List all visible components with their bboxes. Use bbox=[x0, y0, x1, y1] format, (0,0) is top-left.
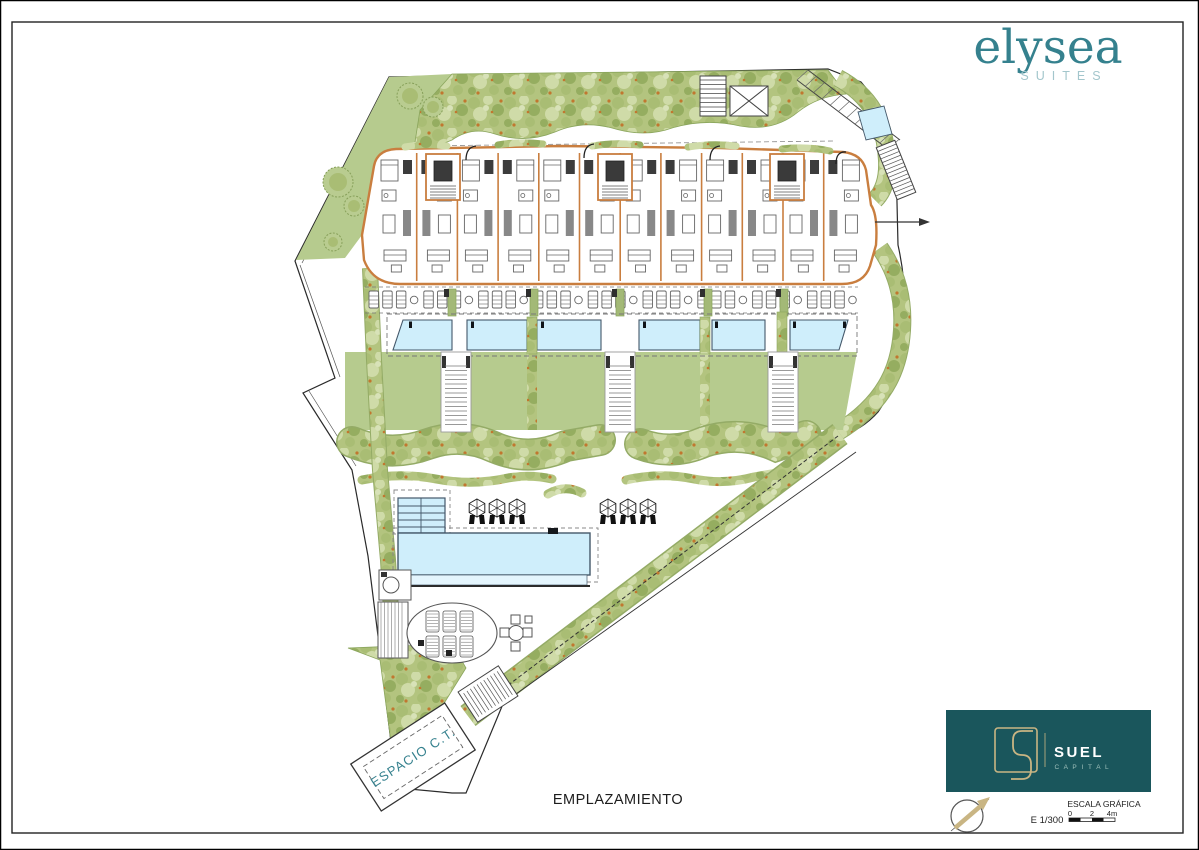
title-block: SUEL C A P I T A L E 1/300 ESCALA GRÁFIC… bbox=[946, 710, 1151, 832]
terrace-lounger bbox=[712, 291, 722, 308]
terrace-table bbox=[849, 296, 857, 304]
pool-5 bbox=[712, 320, 765, 350]
hedge-scallop-left bbox=[352, 439, 600, 455]
terrace-lounger bbox=[766, 291, 776, 308]
main-pool bbox=[398, 533, 590, 575]
terrace-lounger bbox=[725, 291, 735, 308]
scale-bar-seg bbox=[1069, 818, 1081, 822]
terrace-lounger bbox=[807, 291, 817, 308]
graphic-scale: ESCALA GRÁFICA 0 2 4m bbox=[1067, 799, 1141, 822]
site-plan: ESPACIO C.T. bbox=[295, 69, 930, 811]
lawn-stair-block bbox=[768, 352, 798, 432]
scale-tick-2: 2 bbox=[1090, 809, 1094, 818]
terrace-table bbox=[684, 296, 692, 304]
terrace-table bbox=[794, 296, 802, 304]
pool-divider-planter bbox=[700, 317, 710, 354]
terrace-lounger bbox=[670, 291, 680, 308]
terrace-table bbox=[520, 296, 528, 304]
terrace-lounger bbox=[821, 291, 831, 308]
terrace-lounger bbox=[424, 291, 434, 308]
terrace-lounger bbox=[643, 291, 653, 308]
scale-tick-4m: 4m bbox=[1107, 809, 1117, 818]
terrace-lounger bbox=[753, 291, 763, 308]
top-stairs-structure bbox=[700, 76, 726, 116]
drawing-title: EMPLAZAMIENTO bbox=[553, 792, 683, 808]
terrace-planter bbox=[616, 289, 624, 316]
suel-company-sub: C A P I T A L bbox=[1055, 764, 1111, 771]
main-pool-shelf bbox=[405, 575, 587, 585]
lawn-stair-block bbox=[441, 352, 471, 432]
pergola bbox=[378, 602, 408, 658]
terrace-lounger bbox=[396, 291, 406, 308]
terrace-table bbox=[465, 296, 473, 304]
brand-sub: SUITES bbox=[1020, 69, 1107, 83]
terrace-lounger bbox=[835, 291, 845, 308]
main-pool-steps bbox=[398, 498, 445, 533]
terrace-lounger bbox=[657, 291, 667, 308]
main-pool-skimmer bbox=[548, 528, 558, 534]
suel-company-name: SUEL bbox=[1054, 744, 1104, 761]
terrace-planter bbox=[530, 289, 538, 316]
pool-2 bbox=[467, 320, 527, 350]
lawn-stair-block bbox=[605, 352, 635, 432]
pool-divider-planter bbox=[527, 317, 537, 354]
core-lift-stairs bbox=[770, 154, 804, 200]
north-compass-icon bbox=[951, 797, 990, 832]
terrace-lounger bbox=[547, 291, 557, 308]
site-plan-canvas: ESPACIO C.T. elysea SUITES EMPLAZAMIENTO… bbox=[0, 0, 1199, 850]
scale-bar-seg bbox=[1092, 818, 1104, 822]
terrace-planter bbox=[704, 289, 712, 316]
terrace-lounger bbox=[506, 291, 516, 308]
hedge-scallop-right bbox=[640, 436, 806, 450]
lawn-planter-strip bbox=[527, 352, 537, 430]
core-lift-stairs bbox=[426, 154, 460, 200]
terrace-lounger bbox=[602, 291, 612, 308]
terrace-table bbox=[410, 296, 418, 304]
terrace-lounger bbox=[369, 291, 379, 308]
core-lift-stairs bbox=[598, 154, 632, 200]
brand-logo: elysea SUITES bbox=[973, 20, 1122, 83]
outdoor-shower bbox=[379, 570, 411, 600]
terrace-lounger bbox=[492, 291, 502, 308]
lawn-planter-strip bbox=[700, 352, 710, 430]
pool-4 bbox=[639, 320, 700, 350]
terrace-table bbox=[739, 296, 747, 304]
sun-lounger-deck bbox=[407, 603, 497, 663]
pool-3 bbox=[537, 320, 601, 350]
hedge-arc-small bbox=[548, 489, 582, 494]
terrace-lounger bbox=[588, 291, 598, 308]
terrace-lounger bbox=[383, 291, 393, 308]
scale-ratio-label: E 1/300 bbox=[1031, 815, 1064, 826]
terrace-lounger bbox=[561, 291, 571, 308]
pool-1 bbox=[393, 320, 452, 350]
plan-sheet: ESPACIO C.T. elysea SUITES EMPLAZAMIENTO… bbox=[0, 0, 1199, 850]
suel-logo-box bbox=[946, 710, 1151, 792]
terrace-table bbox=[575, 296, 583, 304]
brand-name: elysea bbox=[973, 20, 1122, 75]
terrace-table bbox=[630, 296, 638, 304]
scale-tick-0: 0 bbox=[1068, 809, 1072, 818]
lift-x-box bbox=[730, 86, 768, 116]
pool-6 bbox=[790, 320, 848, 350]
scale-title: ESCALA GRÁFICA bbox=[1067, 799, 1141, 809]
terrace-planter bbox=[448, 289, 456, 316]
terrace-lounger bbox=[479, 291, 489, 308]
